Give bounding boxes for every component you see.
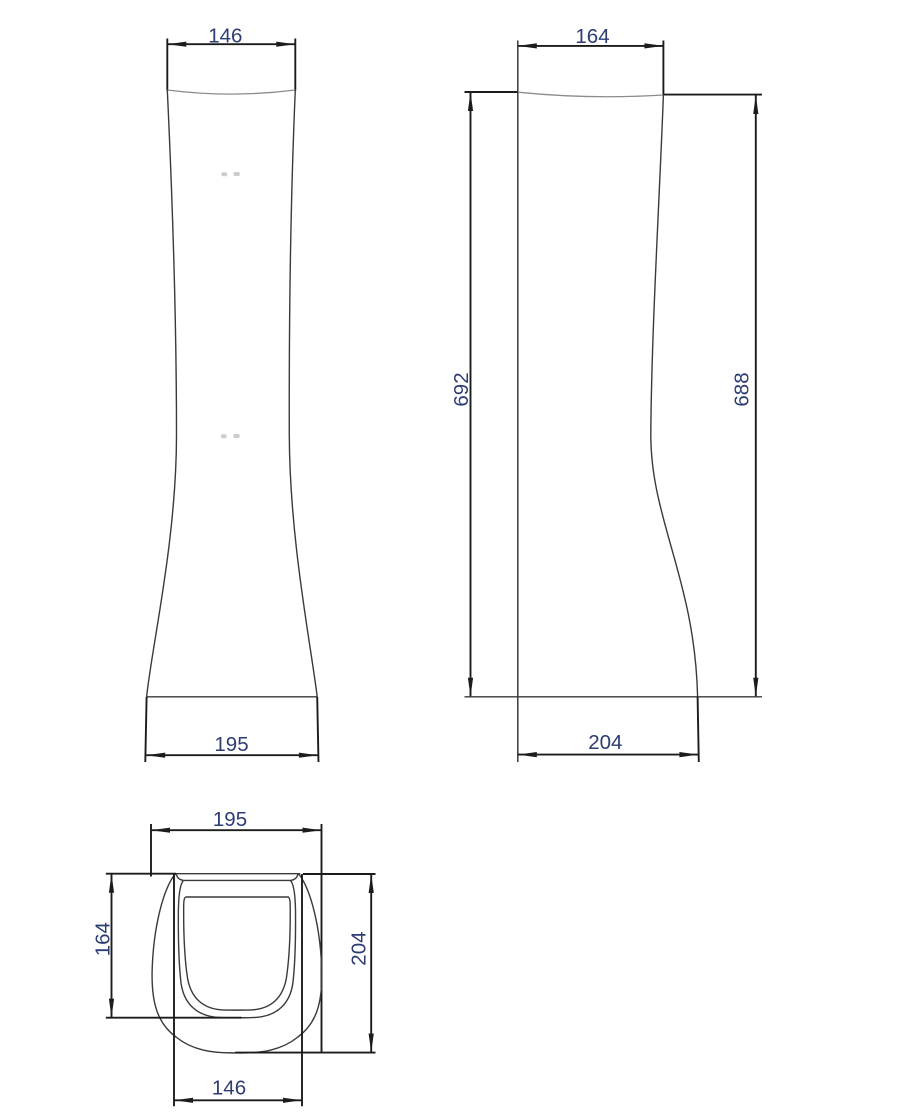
svg-text:204: 204 <box>348 931 371 965</box>
svg-text:195: 195 <box>213 808 247 831</box>
svg-text:692: 692 <box>450 372 473 406</box>
svg-text:204: 204 <box>588 731 622 754</box>
svg-text:195: 195 <box>214 733 248 756</box>
svg-text:164: 164 <box>92 922 115 956</box>
svg-text:146: 146 <box>212 1077 246 1100</box>
svg-text:164: 164 <box>575 25 609 48</box>
svg-text:688: 688 <box>731 372 754 406</box>
